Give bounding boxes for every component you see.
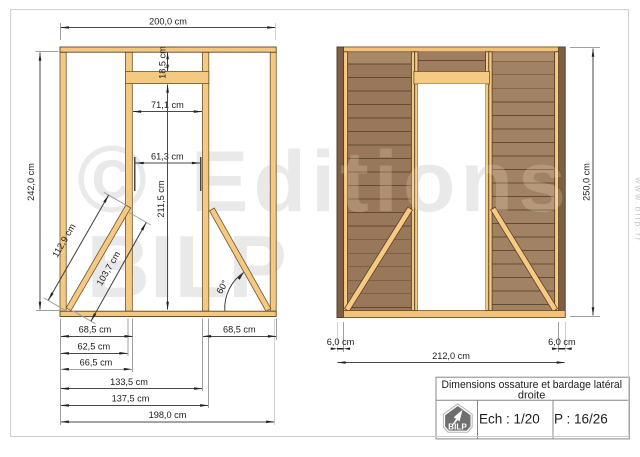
svg-text:198,0 cm: 198,0 cm [149,410,187,420]
svg-text:droite: droite [518,390,546,402]
svg-text:133,5 cm: 133,5 cm [110,377,148,387]
svg-text:242,0 cm: 242,0 cm [26,163,36,201]
svg-text:Ech : 1/20: Ech : 1/20 [479,412,540,427]
svg-text:212,0 cm: 212,0 cm [432,351,470,361]
svg-text:P : 16/26: P : 16/26 [554,412,608,427]
svg-text:BILP: BILP [448,422,467,431]
svg-text:www.bilp.fr: www.bilp.fr [634,176,640,242]
svg-text:18,5 cm: 18,5 cm [157,46,167,79]
svg-text:200,0 cm: 200,0 cm [149,17,187,27]
svg-text:6,0 cm: 6,0 cm [327,337,355,347]
svg-text:6,0 cm: 6,0 cm [548,337,576,347]
svg-text:137,5 cm: 137,5 cm [112,394,150,404]
svg-text:250,0 cm: 250,0 cm [582,163,592,201]
svg-text:66,5 cm: 66,5 cm [80,358,113,368]
svg-text:68,5 cm: 68,5 cm [223,325,256,335]
svg-text:68,5 cm: 68,5 cm [79,325,112,335]
svg-text:211,5 cm: 211,5 cm [156,180,166,217]
svg-text:62,5 cm: 62,5 cm [77,342,110,352]
